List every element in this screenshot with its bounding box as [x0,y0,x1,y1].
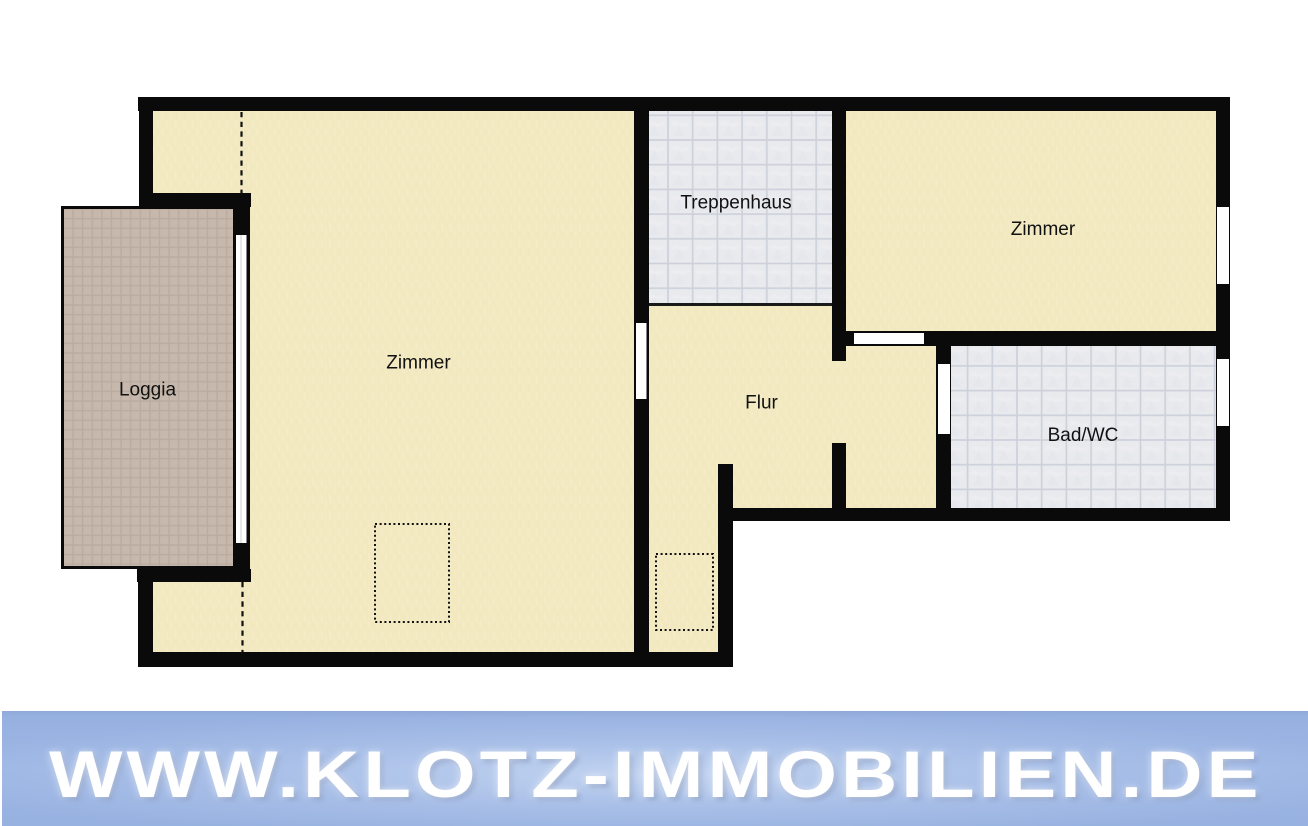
svg-text:Loggia: Loggia [119,380,176,401]
svg-text:Treppenhaus: Treppenhaus [680,193,791,214]
svg-text:Flur: Flur [745,393,778,414]
svg-text:Zimmer: Zimmer [386,353,451,374]
svg-text:WWW.KLOTZ-IMMOBILIEN.DE: WWW.KLOTZ-IMMOBILIEN.DE [49,738,1259,811]
svg-text:Bad/WC: Bad/WC [1048,425,1119,446]
svg-text:Zimmer: Zimmer [1011,219,1076,240]
